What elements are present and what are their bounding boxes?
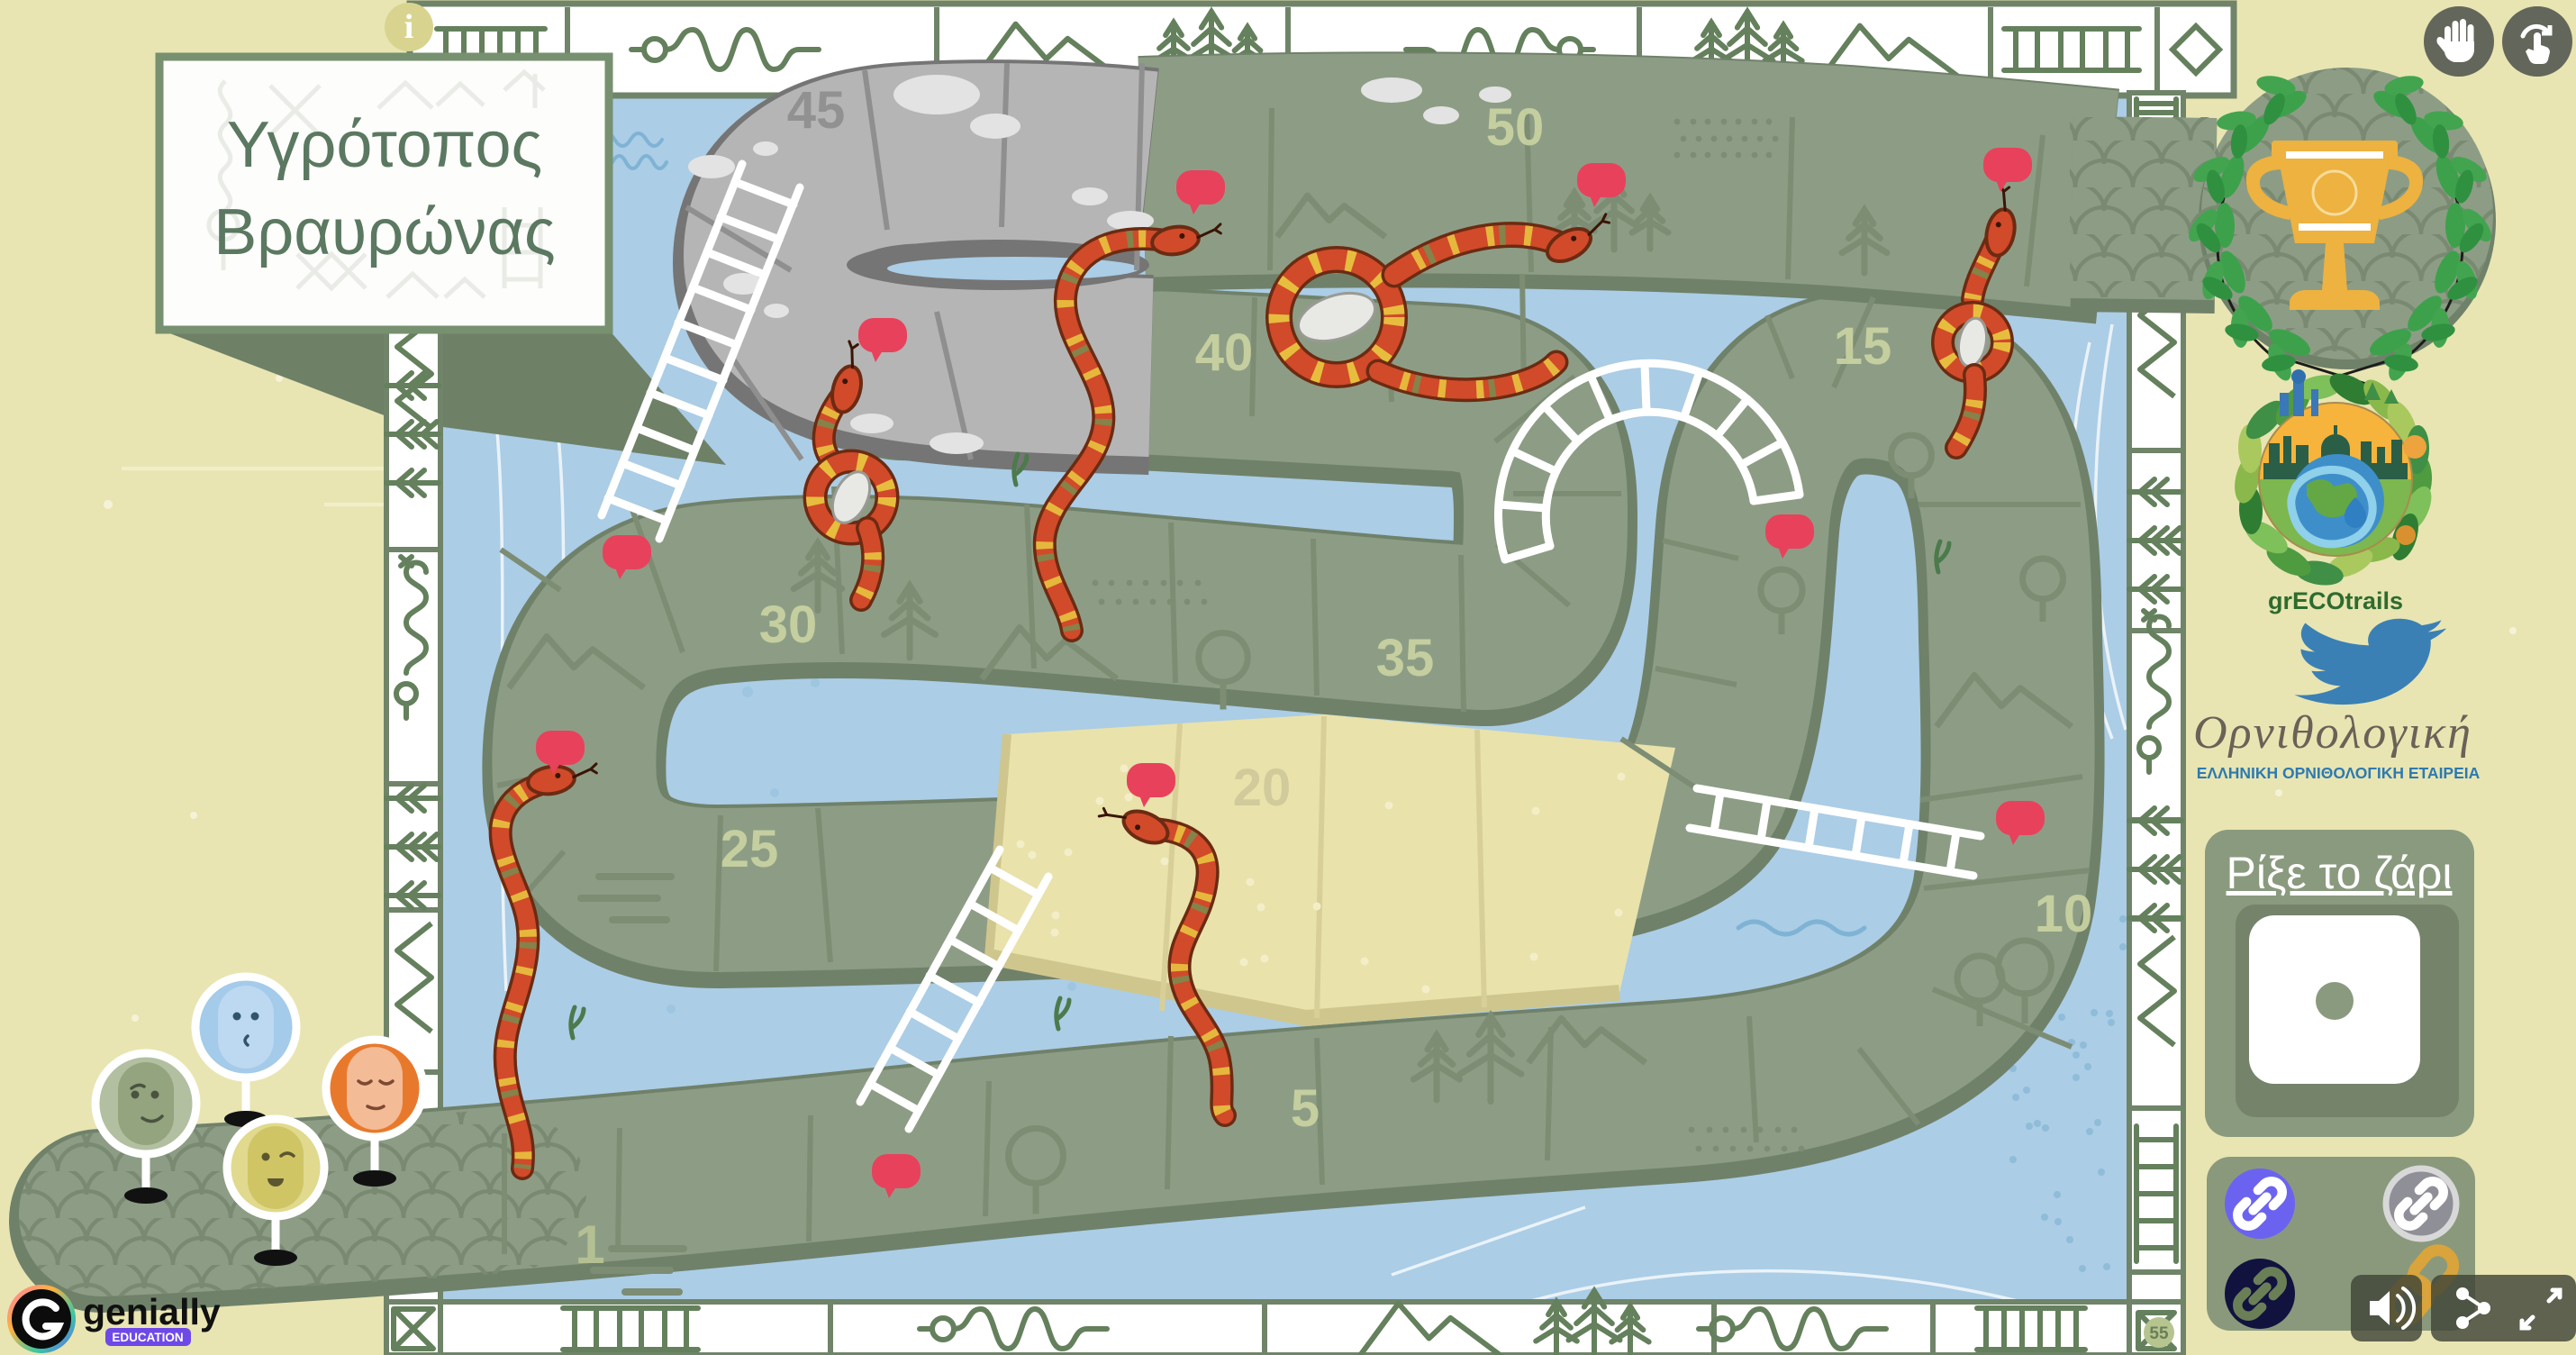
svg-text:Υγρότοπος: Υγρότοπος <box>227 109 542 181</box>
svg-text:i: i <box>404 8 414 46</box>
svg-text:ΕΛΛΗΝΙΚΗ ΟΡΝΙΘΟΛΟΓΙΚΗ ΕΤΑΙΡΕΙΑ: ΕΛΛΗΝΙΚΗ ΟΡΝΙΘΟΛΟΓΙΚΗ ΕΤΑΙΡΕΙΑ <box>2197 764 2481 782</box>
svg-text:55: 55 <box>2149 1324 2169 1343</box>
svg-text:45: 45 <box>787 81 846 140</box>
svg-text:35: 35 <box>1376 629 1435 687</box>
svg-text:grECOtrails: grECOtrails <box>2268 587 2403 614</box>
svg-text:15: 15 <box>1834 317 1892 376</box>
svg-text:25: 25 <box>721 820 779 878</box>
svg-text:genially: genially <box>83 1291 221 1332</box>
svg-text:30: 30 <box>759 596 818 654</box>
svg-text:40: 40 <box>1195 323 1254 382</box>
svg-text:1: 1 <box>575 1214 604 1275</box>
svg-text:10: 10 <box>2035 885 2093 943</box>
svg-text:Ορνιθολογική: Ορνιθολογική <box>2193 707 2472 759</box>
svg-text:50: 50 <box>1486 98 1545 157</box>
svg-text:EDUCATION: EDUCATION <box>112 1331 183 1344</box>
svg-text:20: 20 <box>1233 759 1292 817</box>
svg-text:Βραυρώνας: Βραυρώνας <box>213 196 555 268</box>
svg-text:5: 5 <box>1291 1079 1320 1138</box>
svg-text:Ρίξε το ζάρι: Ρίξε το ζάρι <box>2227 848 2453 898</box>
